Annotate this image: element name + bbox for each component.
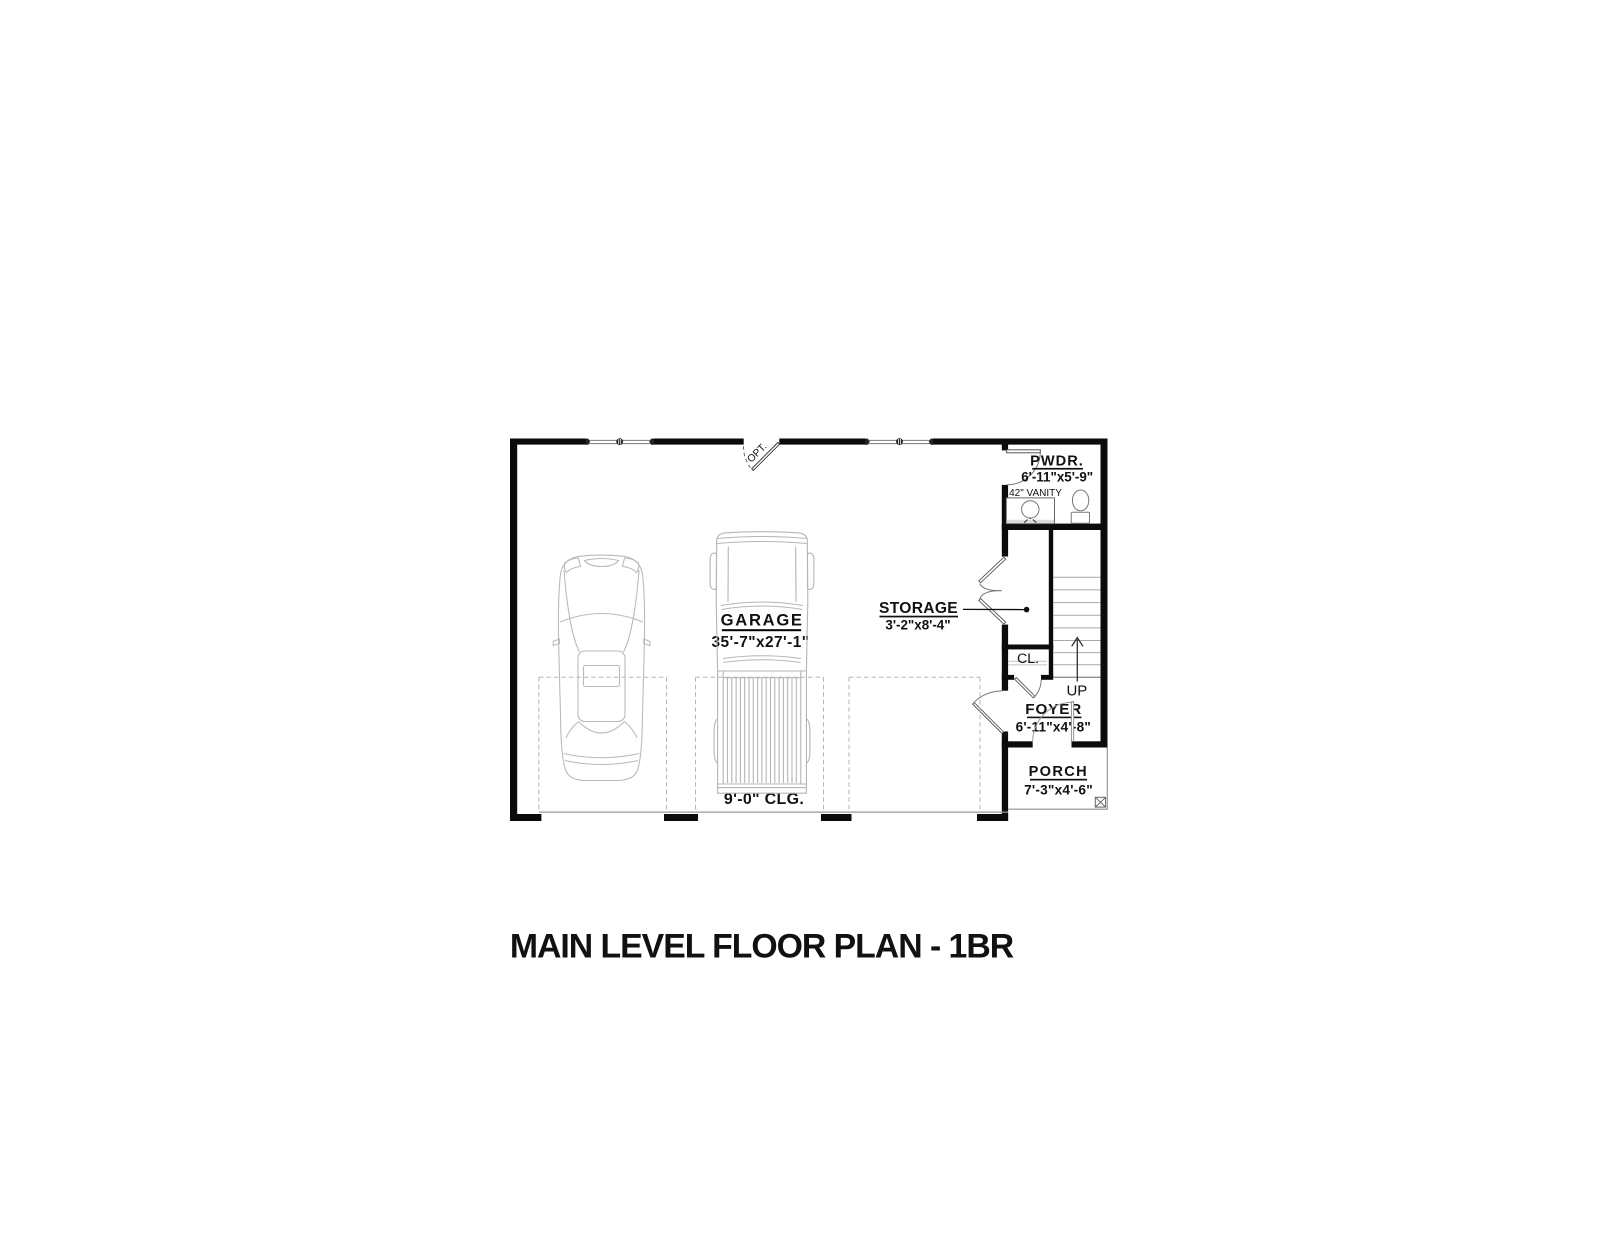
svg-text:STORAGE: STORAGE [879, 600, 958, 617]
svg-text:6'-11"x5'-9": 6'-11"x5'-9" [1021, 470, 1093, 485]
svg-text:35'-7"x27'-1": 35'-7"x27'-1" [712, 634, 810, 651]
svg-text:CL.: CL. [1017, 651, 1039, 667]
svg-text:MAIN LEVEL FLOOR PLAN - 1BR: MAIN LEVEL FLOOR PLAN - 1BR [510, 928, 1014, 966]
svg-text:7'-3"x4'-6": 7'-3"x4'-6" [1024, 782, 1093, 797]
svg-text:OPT.: OPT. [746, 441, 770, 465]
svg-text:PWDR.: PWDR. [1030, 453, 1084, 469]
svg-text:UP: UP [1066, 683, 1087, 700]
svg-text:3'-2"x8'-4": 3'-2"x8'-4" [885, 617, 950, 632]
svg-text:6'-11"x4'-8": 6'-11"x4'-8" [1016, 720, 1091, 735]
svg-text:PORCH: PORCH [1029, 764, 1088, 780]
svg-text:GARAGE: GARAGE [721, 611, 804, 630]
